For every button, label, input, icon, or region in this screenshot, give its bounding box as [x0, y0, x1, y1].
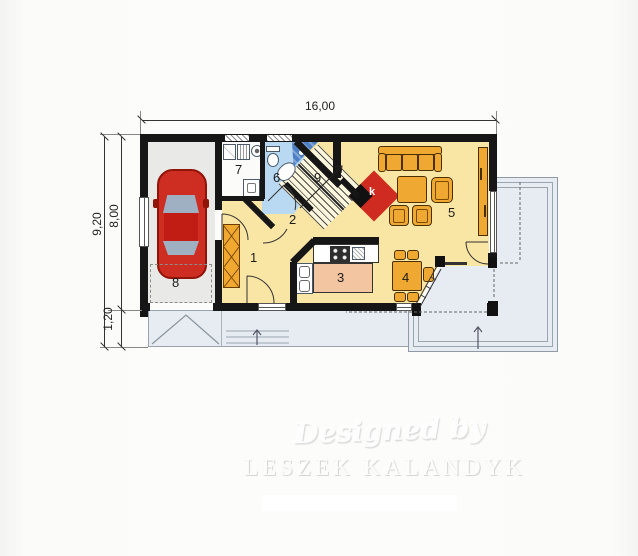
roof-overhang-dashed	[346, 182, 520, 312]
door-arc-bathroom	[268, 185, 296, 210]
terrace-arrow	[474, 327, 482, 349]
floorplan-canvas: k	[0, 0, 638, 556]
door-arc-garage	[222, 214, 248, 240]
wardrobe-x-lines	[224, 226, 239, 287]
door-arc-hall	[263, 229, 287, 243]
driveway-slope-lines	[152, 315, 219, 344]
door-arc-terrace	[466, 242, 488, 264]
stairs-arrow	[300, 166, 342, 208]
plan-overlay	[0, 0, 638, 556]
window-hatch-ticks	[421, 277, 436, 298]
door-arc-entry	[247, 276, 274, 303]
dining-diagonal-window	[416, 266, 441, 307]
